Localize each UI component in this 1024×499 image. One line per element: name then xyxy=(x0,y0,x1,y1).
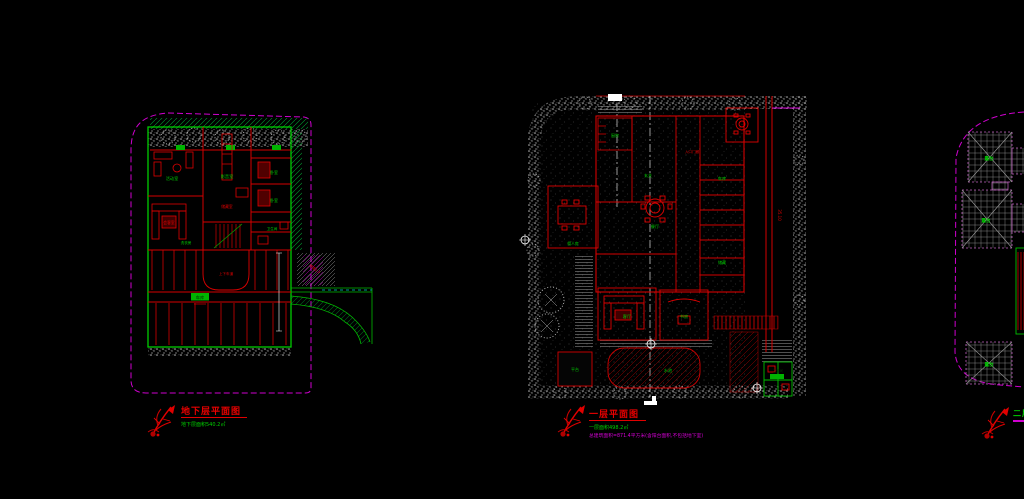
basement-right-hedge xyxy=(291,130,302,250)
ramp-label: 上下车道 xyxy=(219,271,234,276)
first-floor-plan: 厨房 餐厅 客厅 书房 车库 储藏 水池 佣人房 入口门廊 平台 玄关 卫生间 … xyxy=(519,94,807,439)
platform-label: 平台 xyxy=(571,366,579,372)
room-label: 卫生间 xyxy=(267,226,278,231)
axis-bubble xyxy=(608,94,622,101)
room-label: 影音室 xyxy=(221,173,234,180)
road-dim-label: 35.10 xyxy=(777,209,782,221)
basement-driveway xyxy=(291,253,372,344)
room-label: 活动室 xyxy=(166,175,179,182)
room-label: 佣人房 xyxy=(567,241,579,246)
title-underline xyxy=(1013,420,1024,422)
steps-strip xyxy=(575,256,593,348)
second-floor-plan: 露台 露台 露台 二层平面图 xyxy=(955,112,1024,439)
entry-steps xyxy=(598,104,642,115)
room-label: 卧室 xyxy=(270,169,278,175)
basement-plan: 活动室 影音室 卧室 卧室 卫生间 洗衣房 储藏室 上下车道 车库 坡道1:7 … xyxy=(131,113,372,437)
room-label: 餐厅 xyxy=(651,223,659,230)
room-label: 洗衣房 xyxy=(181,240,192,245)
basement-parking-mid xyxy=(152,250,288,290)
entry-label: 入口门廊 xyxy=(685,149,700,154)
basement-plan-subtitle: 地下层面积540.2㎡ xyxy=(181,421,225,428)
room-label: 卧室 xyxy=(270,197,278,203)
basement-building-outline xyxy=(148,127,291,347)
cad-canvas[interactable]: 活动室 影音室 卧室 卧室 卫生间 洗衣房 储藏室 上下车道 车库 坡道1:7 … xyxy=(0,0,1024,499)
title-underline xyxy=(181,417,247,418)
pond xyxy=(608,348,700,388)
title-underline xyxy=(589,420,646,421)
plant-sketch-icon xyxy=(982,407,1009,439)
cad-drawing: 活动室 影音室 卧室 卧室 卫生间 洗衣房 储藏室 上下车道 车库 坡道1:7 … xyxy=(0,0,1024,499)
roof-label: 露台 xyxy=(985,361,994,368)
room-label: 储藏室 xyxy=(221,204,233,209)
paving-hatch xyxy=(730,332,758,392)
first-plan-subtitle-area: 一层面积498.2㎡ xyxy=(589,424,628,431)
roof-label: 露台 xyxy=(985,155,994,162)
roof-block xyxy=(962,190,1024,248)
roof-block xyxy=(968,132,1024,182)
room-label: 储藏 xyxy=(718,259,726,265)
roof-label: 露台 xyxy=(982,217,991,224)
roof-connector xyxy=(992,182,1008,190)
second-plan-title: 二层平面图 xyxy=(1013,409,1024,418)
first-plan-title: 一层平面图 xyxy=(589,409,639,420)
room-label: 卫生间 xyxy=(773,368,784,373)
room-label: 会客室 xyxy=(163,220,175,225)
room-label: 玄关 xyxy=(644,172,652,178)
room-label: 书房 xyxy=(680,313,688,320)
basement-plan-title: 地下层平面图 xyxy=(181,405,241,417)
plant-sketch-icon xyxy=(148,405,175,437)
basement-bottom-shrub xyxy=(148,348,291,356)
first-plan-subtitle-total: 总建筑面积=871.4平方米(含阳台面积,不包括地下室) xyxy=(589,432,703,439)
roof-strip xyxy=(1016,248,1024,334)
landscape-border-right xyxy=(793,96,806,396)
basement-parking-bottom xyxy=(156,303,286,345)
room-label: 客厅 xyxy=(623,313,631,320)
pond-label: 水池 xyxy=(664,367,673,373)
room-label: 车库 xyxy=(718,175,726,182)
basement-ramp xyxy=(203,250,249,290)
paved-walk xyxy=(714,316,778,329)
room-label: 厨房 xyxy=(611,132,619,138)
garage-label: 车库 xyxy=(196,294,204,301)
plant-sketch-icon xyxy=(558,405,585,437)
basement-stairs xyxy=(214,224,242,248)
